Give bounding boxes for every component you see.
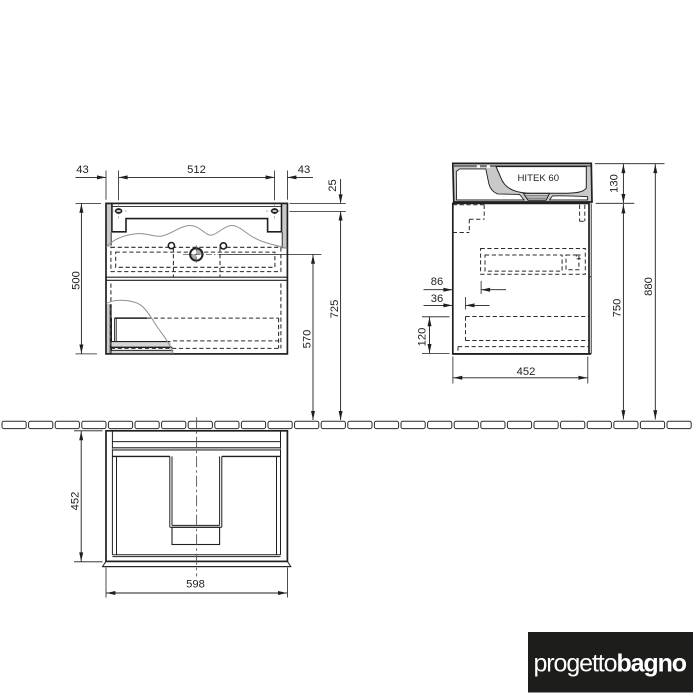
- svg-text:512: 512: [187, 164, 206, 176]
- svg-text:43: 43: [76, 164, 88, 176]
- svg-text:880: 880: [643, 277, 655, 296]
- svg-text:120: 120: [417, 328, 429, 347]
- svg-text:progettobagno: progettobagno: [534, 650, 687, 678]
- svg-text:570: 570: [301, 330, 313, 349]
- svg-text:HITEK 60: HITEK 60: [518, 173, 560, 184]
- svg-text:130: 130: [609, 174, 621, 193]
- svg-text:25: 25: [327, 179, 339, 191]
- svg-text:500: 500: [70, 271, 82, 290]
- svg-text:598: 598: [186, 578, 205, 590]
- svg-text:452: 452: [69, 492, 81, 511]
- svg-text:750: 750: [611, 299, 623, 318]
- svg-text:43: 43: [298, 164, 310, 176]
- svg-text:86: 86: [431, 276, 443, 288]
- svg-text:36: 36: [431, 293, 443, 305]
- svg-text:725: 725: [329, 300, 341, 319]
- svg-text:452: 452: [517, 366, 536, 378]
